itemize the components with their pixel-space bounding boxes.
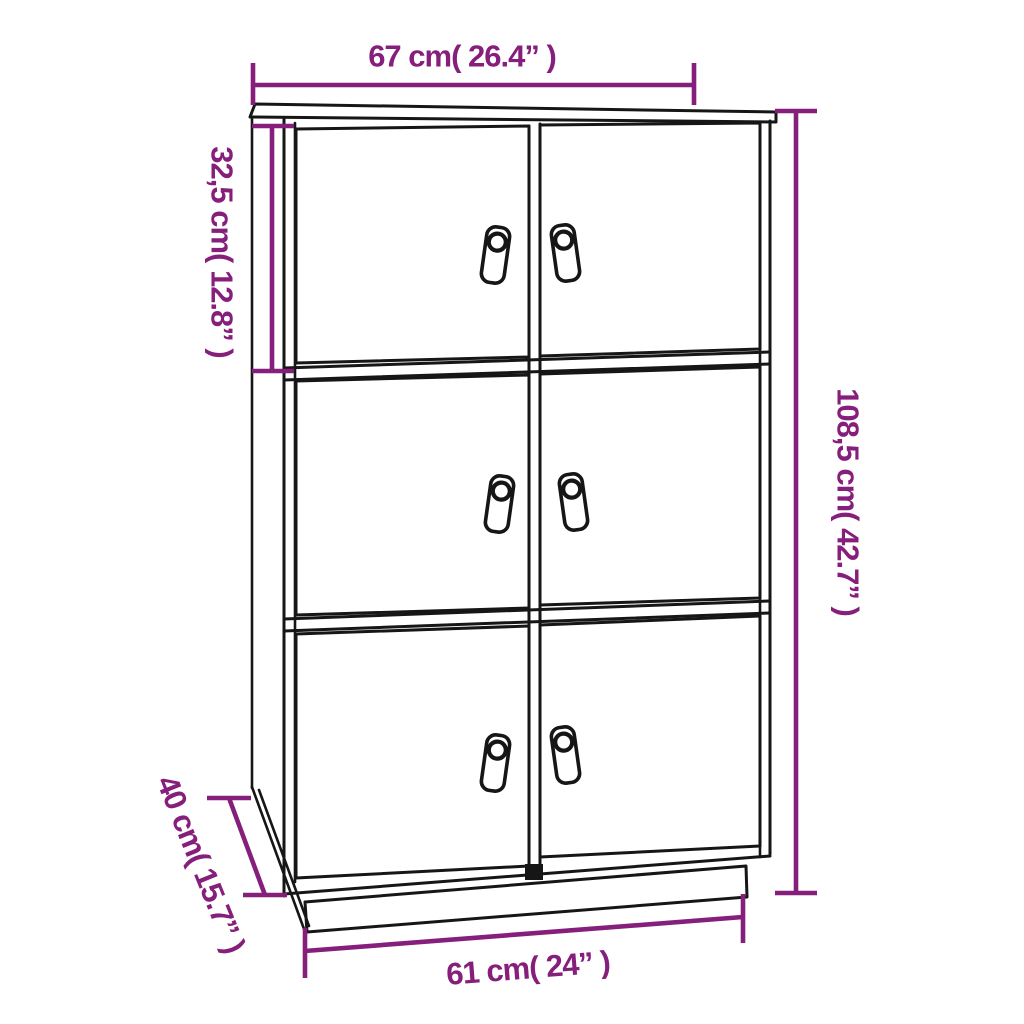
product-dimension-diagram: 67 cm( 26.4” ) 32,5 cm( 12.8” ) 108,5 cm…: [0, 0, 1024, 1024]
dimension-line: [305, 917, 743, 951]
handle-row3-right: [550, 726, 581, 785]
handle-ring-hole-icon: [492, 482, 511, 501]
dimension-depth: 40 cm( 15.7” ): [150, 770, 287, 957]
handle-row3-left: [480, 734, 511, 793]
dimension-total-height: 108,5 cm( 42.7” ): [775, 111, 866, 893]
dimension-compartment-height: 32,5 cm( 12.8” ): [205, 126, 295, 371]
dimension-bottom-width: 61 cm( 24” ): [305, 894, 743, 992]
handle-row2-right: [558, 473, 589, 532]
handle-ring-hole-icon: [554, 231, 573, 250]
handle-row2-left: [484, 475, 515, 534]
cabinet-top-board: [250, 104, 776, 122]
cabinet-diagram-canvas: 67 cm( 26.4” ) 32,5 cm( 12.8” ) 108,5 cm…: [0, 0, 1024, 1024]
handle-ring-hole-icon: [554, 733, 573, 752]
cabinet-line-art: [250, 104, 776, 932]
dimension-top-width: 67 cm( 26.4” ): [253, 39, 694, 106]
handle-row1-right: [550, 224, 581, 283]
dimension-label-compartment-height: 32,5 cm( 12.8” ): [205, 146, 240, 357]
handle-ring-hole-icon: [562, 480, 581, 499]
handle-ring-hole-icon: [488, 741, 507, 760]
handle-ring-hole-icon: [488, 233, 507, 252]
dimension-label-total-height: 108,5 cm( 42.7” ): [831, 388, 866, 616]
dimension-label-top-width: 67 cm( 26.4” ): [368, 39, 556, 74]
dimension-line: [229, 798, 265, 895]
handle-row1-left: [480, 226, 511, 285]
dimension-label-bottom-width: 61 cm( 24” ): [445, 944, 611, 992]
